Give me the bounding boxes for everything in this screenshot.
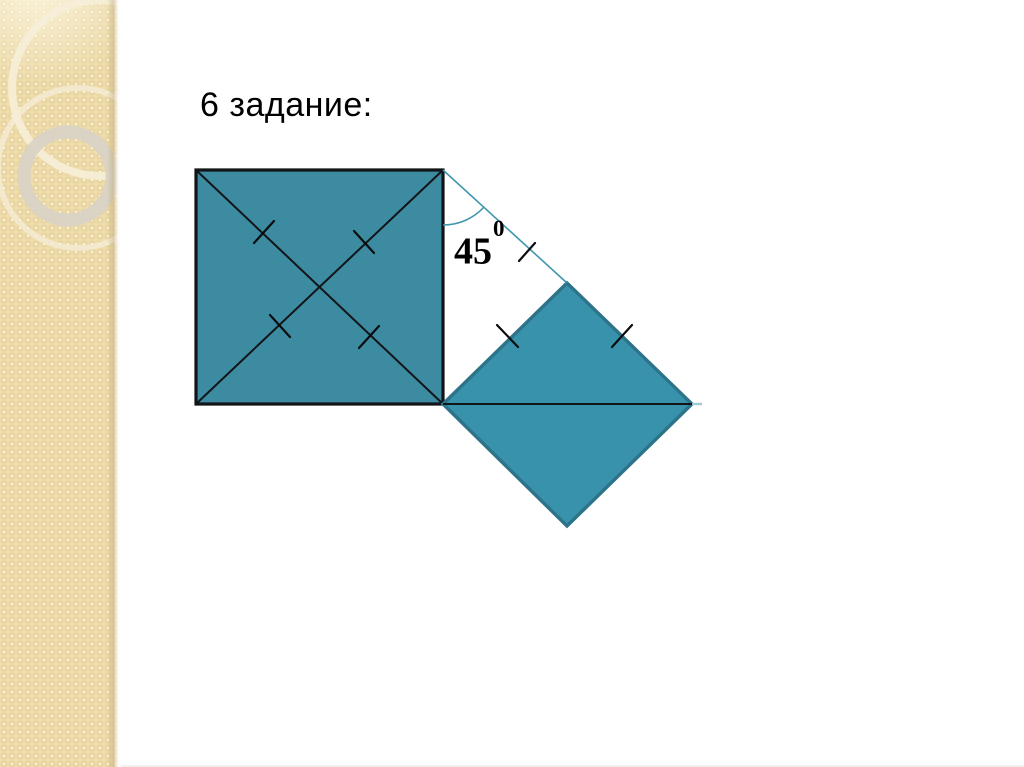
- presentation-slide: 6 задание: 450: [0, 0, 1024, 767]
- angle-degrees: 45: [454, 231, 492, 273]
- angle-arc: [443, 207, 484, 225]
- geometry-figure: 450: [0, 0, 1024, 765]
- angle-exponent: 0: [493, 216, 505, 241]
- figure-canvas: [0, 0, 1024, 767]
- angle-value-label: 450: [454, 231, 505, 271]
